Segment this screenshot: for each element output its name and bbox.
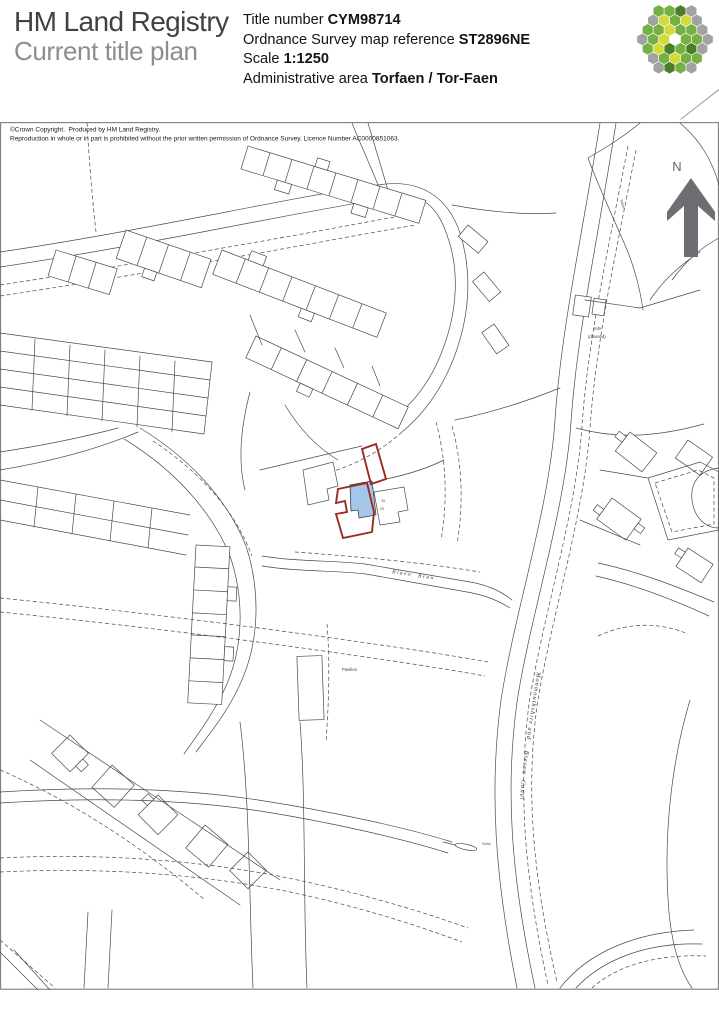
- sinks-label: Sinks: [482, 842, 491, 846]
- logo-hex-cell: [648, 52, 658, 64]
- hm-land-registry-brand: HM Land Registry Current title plan: [14, 6, 228, 66]
- os-map-ref-row: Ordnance Survey map reference ST2896NE: [243, 31, 530, 51]
- logo-hex-cell: [670, 15, 680, 27]
- logo-hex-cell: [659, 33, 669, 45]
- scan-fold-line: [680, 87, 719, 120]
- logo-hex-cell: [664, 24, 674, 36]
- kiln-label: Kiln: [594, 326, 602, 331]
- copyright-line-2: Reproduction in whole or in part is proh…: [10, 136, 400, 143]
- title-number-row: Title number CYM98714: [243, 11, 530, 31]
- logo-hex-cell: [643, 24, 653, 36]
- logo-hex-cell: [670, 33, 680, 45]
- logo-hex-cell: [686, 24, 696, 36]
- plot-number-20: 20: [380, 507, 384, 511]
- logo-hex-cell: [675, 24, 685, 36]
- scale-value: 1:1250: [284, 51, 329, 67]
- logo-hex-cell: [654, 43, 664, 55]
- map-parcels-east: [576, 424, 719, 988]
- logo-hex-cell: [659, 15, 669, 27]
- logo-hex-cell: [681, 52, 691, 64]
- map-field-pavilion: Pavilion: [240, 624, 358, 988]
- title-number-label: Title number: [243, 12, 328, 28]
- os-map-ref-value: ST2896NE: [459, 32, 530, 48]
- logo-hex-cell: [643, 43, 653, 55]
- title-plan-map: ©Crown Copyright. Produced by HM Land Re…: [0, 122, 719, 990]
- logo-hex-cell: [692, 52, 702, 64]
- logo-hex-cell: [654, 24, 664, 36]
- map-parcels-southwest: [0, 720, 468, 990]
- logo-hex-cell: [692, 33, 702, 45]
- logo-hex-cell: [637, 33, 647, 45]
- logo-hex-cell: [675, 62, 685, 74]
- neighbour-building-west: [303, 462, 338, 505]
- logo-hex-cell: [659, 52, 669, 64]
- canal-label: Monmouthshire and Brecon Canal: [518, 671, 542, 801]
- red-boundary-strip: [362, 444, 386, 484]
- scale-row: Scale 1:1250: [243, 50, 530, 70]
- north-arrow: N: [667, 159, 715, 257]
- admin-area-value: Torfaen / Tor-Faen: [372, 71, 498, 87]
- scale-label: Scale: [243, 51, 284, 67]
- logo-hex-cell: [681, 15, 691, 27]
- logo-hex-cell: [686, 62, 696, 74]
- logo-hex-cell: [664, 43, 674, 55]
- logo-hex-cell: [686, 5, 696, 17]
- logo-hex-cell: [648, 33, 658, 45]
- os-map-ref-label: Ordnance Survey map reference: [243, 32, 459, 48]
- hm-land-registry-hexagon-logo-icon: [633, 0, 717, 84]
- copyright-line-1: ©Crown Copyright. Produced by HM Land Re…: [10, 126, 160, 134]
- logo-hex-cell: [681, 33, 691, 45]
- copyright-note: ©Crown Copyright. Produced by HM Land Re…: [10, 126, 400, 143]
- logo-hex-cell: [654, 5, 664, 17]
- water-label: Water: [619, 199, 626, 210]
- os-map-canvas: ©Crown Copyright. Produced by HM Land Re…: [0, 122, 719, 990]
- admin-area-label: Administrative area: [243, 71, 372, 87]
- logo-hex-cell: [703, 33, 713, 45]
- map-parcels-west: [0, 333, 239, 705]
- logo-hex-cell: [675, 5, 685, 17]
- logo-hex-cell: [697, 24, 707, 36]
- admin-area-row: Administrative area Torfaen / Tor-Faen: [243, 70, 530, 90]
- neighbour-building-east: [374, 487, 408, 525]
- logo-hex-cell: [670, 52, 680, 64]
- brand-name: HM Land Registry: [14, 6, 228, 37]
- north-label: N: [672, 159, 681, 174]
- monmouthshire-brecon-canal: Monmouthshire and Brecon Canal: [495, 123, 706, 988]
- logo-hex-cell: [664, 62, 674, 74]
- document-type-title: Current title plan: [14, 37, 228, 66]
- title-number-value: CYM98714: [328, 12, 401, 28]
- map-border: [1, 123, 719, 990]
- registered-title-extent: 39 20: [260, 444, 444, 538]
- logo-hex-cell: [697, 43, 707, 55]
- kiln-disused-label: (disused): [588, 334, 606, 339]
- pavilion-label: Pavilion: [342, 667, 358, 672]
- logo-hex-cell: [692, 15, 702, 27]
- north-arrow-icon: [667, 178, 715, 257]
- logo-hex-cell: [648, 15, 658, 27]
- logo-hex-cell: [675, 43, 685, 55]
- title-plan-page: HM Land Registry Current title plan Titl…: [0, 0, 719, 1024]
- logo-hex-cell: [686, 43, 696, 55]
- plot-number-39: 39: [381, 499, 385, 503]
- logo-hex-cell: [664, 5, 674, 17]
- header: HM Land Registry Current title plan Titl…: [0, 0, 719, 122]
- title-details: Title number CYM98714 Ordnance Survey ma…: [243, 11, 530, 89]
- logo-hex-cell: [654, 62, 664, 74]
